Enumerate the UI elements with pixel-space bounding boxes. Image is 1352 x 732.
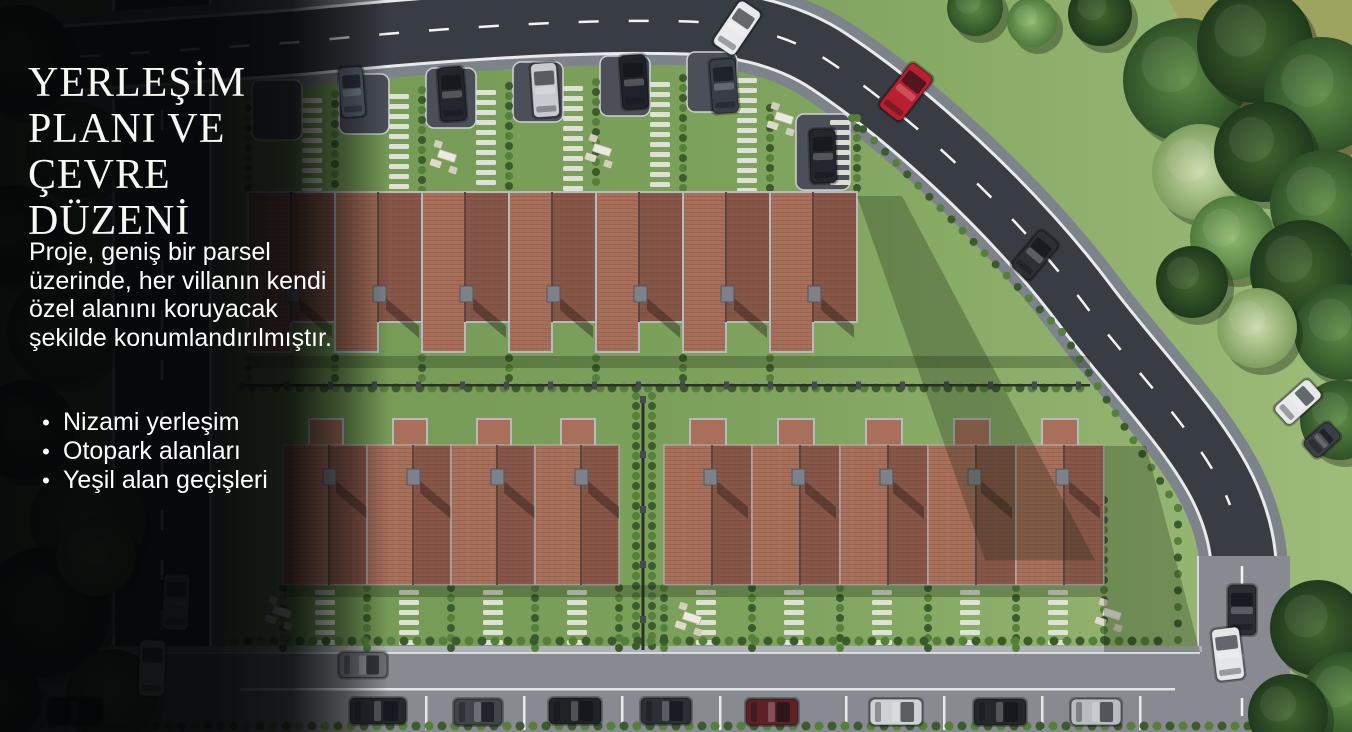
stepping-stone — [1048, 630, 1068, 635]
stepping-stone — [1048, 610, 1068, 615]
car-parked-9 — [1069, 697, 1123, 727]
stepping-stone — [650, 182, 670, 187]
hedge-bush — [426, 637, 435, 646]
hedge-bush — [679, 374, 687, 382]
hedge-bush — [615, 624, 623, 632]
list-item-label: Yeşil alan geçişleri — [63, 466, 349, 494]
car-parked-7 — [868, 697, 924, 727]
title-line-1: YERLEŞİM — [28, 60, 368, 106]
stepping-stone — [650, 172, 670, 177]
hedge-bush — [925, 193, 933, 201]
hedge-bush — [648, 612, 656, 620]
fence-post — [680, 382, 685, 390]
hedge-bush — [829, 637, 838, 646]
stepping-stone — [567, 600, 587, 605]
hedge-bush — [505, 102, 513, 110]
hedge-bush — [853, 134, 861, 142]
hedge-bush — [766, 184, 774, 192]
stepping-stone — [389, 184, 409, 189]
hedge-bush — [592, 98, 600, 106]
stepping-stone — [563, 156, 583, 161]
hedge-bush — [505, 112, 513, 120]
hedge-bush — [836, 614, 844, 622]
stepping-stone — [389, 144, 409, 149]
hedge-bush — [892, 159, 900, 167]
hedge-bush — [632, 612, 640, 620]
hedge-bush — [447, 614, 455, 622]
hedge-bush — [766, 134, 774, 142]
hedge-bush — [648, 482, 656, 490]
stepping-stone — [563, 116, 583, 121]
hedge-bush — [592, 168, 600, 176]
hedge-bush — [894, 637, 903, 646]
stepping-stone — [737, 168, 757, 173]
stepping-stone — [563, 86, 583, 91]
hedge-bush — [972, 637, 981, 646]
hedge-bush — [556, 637, 565, 646]
hedge-bush — [543, 637, 552, 646]
hedge-bush — [632, 572, 640, 580]
stepping-stone — [389, 104, 409, 109]
car-parked-3 — [452, 697, 504, 727]
stepping-stone — [389, 134, 409, 139]
hedge-bush — [853, 154, 861, 162]
bullet-icon: • — [29, 467, 63, 495]
hedge-bush — [981, 249, 989, 257]
chimney — [491, 469, 504, 485]
hedge-bush — [992, 260, 1000, 268]
fence-post — [724, 382, 729, 390]
hedge-bush — [1036, 722, 1045, 731]
stepping-stone — [563, 96, 583, 101]
hedge-bush — [958, 722, 967, 731]
hedge-bush — [648, 442, 656, 450]
hedge-bush — [608, 637, 617, 646]
hedge-bush — [592, 78, 600, 86]
stepping-stone — [389, 174, 409, 179]
hedge-bush — [1112, 409, 1120, 417]
car-driveway-3 — [528, 60, 562, 120]
hedge-bush — [998, 637, 1007, 646]
hedge-bush — [387, 637, 396, 646]
hedge-bush — [582, 637, 591, 646]
hedge-bush — [632, 532, 640, 540]
stepping-stone — [567, 610, 587, 615]
hedge-bush — [907, 637, 916, 646]
hedge-bush — [418, 146, 426, 154]
hedge-bush — [648, 502, 656, 510]
hedge-bush — [1129, 436, 1137, 444]
hedge-bush — [679, 134, 687, 142]
list-item: • Nizami yerleşim — [29, 408, 349, 437]
stepping-stone — [650, 102, 670, 107]
list-item-label: Nizami yerleşim — [63, 408, 349, 436]
hedge-bush — [660, 624, 668, 632]
hedge-bush — [418, 116, 426, 124]
stepping-stone — [650, 82, 670, 87]
hedge-bush — [802, 722, 811, 731]
stepping-stone — [960, 620, 980, 625]
hedge-bush — [970, 238, 978, 246]
fence-post — [640, 561, 646, 568]
fence-post — [548, 382, 553, 390]
fence-post — [640, 506, 646, 513]
hedge-bush — [447, 624, 455, 632]
chimney — [634, 286, 647, 302]
hedge-bush — [764, 637, 773, 646]
stepping-stone — [483, 600, 503, 605]
list-item-label: Otopark alanları — [63, 437, 349, 465]
stepping-stone — [737, 148, 757, 153]
hedge-bush — [1165, 490, 1173, 498]
hedge-bush — [853, 174, 861, 182]
hedge-bush — [418, 374, 426, 382]
hedge-bush — [418, 176, 426, 184]
hedge-bush — [1103, 396, 1111, 404]
car-driveway-2 — [435, 64, 469, 124]
hedge-bush — [751, 637, 760, 646]
hedge-bush — [632, 452, 640, 460]
hedge-bush — [924, 614, 932, 622]
stepping-stone — [563, 146, 583, 151]
hedge-bush — [648, 452, 656, 460]
stepping-stone — [650, 132, 670, 137]
stepping-stone — [476, 120, 496, 125]
hedge-bush — [517, 637, 526, 646]
hedge-bush — [412, 722, 421, 731]
hedge-bush — [632, 512, 640, 520]
hedge-bush — [881, 637, 890, 646]
hedge-bush — [936, 204, 944, 212]
fence-post — [460, 382, 465, 390]
stepping-stone — [872, 600, 892, 605]
chimney — [547, 286, 560, 302]
hedge-bush — [660, 637, 669, 646]
hedge-bush — [648, 402, 656, 410]
hedge-bush — [1205, 722, 1214, 731]
villa-roof — [596, 192, 683, 352]
stepping-stone — [563, 126, 583, 131]
chimney — [575, 469, 588, 485]
car-parked-8 — [972, 697, 1028, 727]
stepping-stone — [389, 124, 409, 129]
hedge-bush — [959, 637, 968, 646]
hedge-bush — [530, 637, 539, 646]
fence-post — [640, 451, 646, 458]
stepping-stone — [563, 176, 583, 181]
hedge-bush — [634, 637, 643, 646]
stepping-stone — [737, 78, 757, 83]
hedge-bush — [648, 462, 656, 470]
hedge-bush — [660, 614, 668, 622]
hedge-bush — [592, 88, 600, 96]
stepping-stone — [784, 610, 804, 615]
hedge-bush — [1085, 369, 1093, 377]
stepping-stone — [830, 120, 850, 125]
hedge-bush — [881, 148, 889, 156]
hedge-bush — [648, 492, 656, 500]
hedge-bush — [620, 722, 629, 731]
hedge-bush — [505, 82, 513, 90]
stepping-stone — [650, 152, 670, 157]
stepping-stone — [960, 600, 980, 605]
hedge-bush — [1011, 637, 1020, 646]
description-paragraph: Proje, geniş bir parsel üzerinde, her vi… — [29, 238, 347, 352]
hedge-bush — [452, 637, 461, 646]
hedge-bush — [595, 637, 604, 646]
fence-post — [636, 382, 641, 390]
stepping-stone — [737, 128, 757, 133]
stepping-stone — [872, 610, 892, 615]
hedge-bush — [790, 637, 799, 646]
hedge-bush — [504, 637, 513, 646]
stepping-stone — [784, 620, 804, 625]
hedge-bush — [505, 132, 513, 140]
stepping-stone — [483, 630, 503, 635]
bullet-icon: • — [29, 438, 63, 466]
hedge-bush — [439, 637, 448, 646]
hedge-bush — [648, 472, 656, 480]
hedge-bush — [438, 722, 447, 731]
hedge-bush — [679, 84, 687, 92]
hedge-bush — [648, 542, 656, 550]
stepping-stone — [784, 600, 804, 605]
hedge-bush — [648, 572, 656, 580]
chimney — [704, 469, 717, 485]
stepping-stone — [483, 610, 503, 615]
bullet-icon: • — [29, 409, 63, 437]
hedge-bush — [959, 227, 967, 235]
fence-post — [900, 382, 905, 390]
hedge-bush — [632, 562, 640, 570]
villa-roof — [770, 192, 857, 352]
hedge-bush — [531, 604, 539, 612]
hedge-bush — [648, 412, 656, 420]
fence-post — [640, 396, 646, 403]
hedge-bush — [945, 722, 954, 731]
hedge-bush — [648, 522, 656, 530]
hedge-bush — [698, 722, 707, 731]
list-item: • Yeşil alan geçişleri — [29, 466, 349, 495]
stepping-stone — [476, 170, 496, 175]
hedge-bush — [1174, 504, 1182, 512]
hedge-bush — [1012, 624, 1020, 632]
hedge-bush — [673, 637, 682, 646]
hedge-bush — [854, 722, 863, 731]
hedge-bush — [679, 124, 687, 132]
hedge-bush — [686, 637, 695, 646]
fence-post — [416, 382, 421, 390]
hedge-bush — [632, 392, 640, 400]
stepping-stone — [784, 630, 804, 635]
stepping-stone — [1048, 620, 1068, 625]
fence-post — [856, 382, 861, 390]
chimney — [407, 469, 420, 485]
hedge-bush — [679, 114, 687, 122]
hedge-bush — [1037, 637, 1046, 646]
stepping-stone — [650, 92, 670, 97]
hedge-bush — [418, 86, 426, 94]
hedge-bush — [679, 164, 687, 172]
villa-roof — [422, 192, 509, 352]
fence-post — [640, 616, 646, 623]
hedge-bush — [418, 96, 426, 104]
hedge-bush — [1063, 637, 1072, 646]
hedge-bush — [725, 637, 734, 646]
hedge-bush — [679, 144, 687, 152]
hedge-bush — [766, 154, 774, 162]
car-driveway-4 — [617, 52, 651, 112]
hedge-bush — [632, 492, 640, 500]
stepping-stone — [650, 162, 670, 167]
hedge-bush — [531, 624, 539, 632]
hedge-bush — [712, 637, 721, 646]
hedge-bush — [842, 637, 851, 646]
hedge-bush — [1012, 604, 1020, 612]
hedge-bush — [632, 472, 640, 480]
hedge-bush — [815, 722, 824, 731]
fence-post — [1076, 382, 1081, 390]
stepping-stone — [737, 178, 757, 183]
hedge-bush — [505, 172, 513, 180]
stepping-stone — [399, 630, 419, 635]
car-parked-6 — [744, 697, 800, 727]
hedge-bush — [1192, 722, 1201, 731]
villa-roof — [509, 192, 596, 352]
hedge-bush — [632, 502, 640, 510]
hedge-bush — [648, 562, 656, 570]
hedge-bush — [1174, 521, 1182, 529]
hedge-bush — [1218, 722, 1227, 731]
slide: YERLEŞİM PLANI VE ÇEVRE DÜZENİ Proje, ge… — [0, 0, 1352, 732]
stepping-stone — [696, 600, 716, 605]
hedge-bush — [1156, 477, 1164, 485]
hedge-bush — [679, 94, 687, 102]
hedge-bush — [679, 184, 687, 192]
hedge-bush — [777, 637, 786, 646]
hedge-bush — [465, 637, 474, 646]
stepping-stone — [1048, 600, 1068, 605]
hedge-bush — [447, 644, 455, 652]
hedge-bush — [711, 722, 720, 731]
stepping-stone — [563, 106, 583, 111]
stepping-stone — [399, 620, 419, 625]
hedge-bush — [592, 374, 600, 382]
hedge-bush — [1024, 637, 1033, 646]
stepping-stone — [476, 140, 496, 145]
hedge-bush — [1094, 382, 1102, 390]
hedge-bush — [1153, 722, 1162, 731]
hedge-bush — [447, 604, 455, 612]
hedge-bush — [632, 482, 640, 490]
feature-list: • Nizami yerleşim • Otopark alanları • Y… — [29, 408, 349, 495]
hedge-bush — [418, 126, 426, 134]
hedge-bush — [724, 722, 733, 731]
hedge-bush — [632, 402, 640, 410]
stepping-stone — [567, 620, 587, 625]
stepping-stone — [389, 164, 409, 169]
hedge-bush — [853, 164, 861, 172]
hedge-bush — [1047, 317, 1055, 325]
hedge-bush — [632, 412, 640, 420]
hedge-bush — [816, 637, 825, 646]
car-driveway-5 — [707, 56, 741, 116]
hedge-bush — [648, 532, 656, 540]
hedge-bush — [418, 136, 426, 144]
hedge-bush — [947, 215, 955, 223]
hedge-bush — [1076, 637, 1085, 646]
hedge-bush — [505, 142, 513, 150]
hedge-bush — [400, 637, 409, 646]
hedge-bush — [632, 622, 640, 630]
hedge-bush — [946, 637, 955, 646]
hedge-bush — [632, 602, 640, 610]
hedge-bush — [413, 637, 422, 646]
hedge-bush — [1231, 722, 1240, 731]
hedge-bush — [924, 604, 932, 612]
stepping-stone — [960, 630, 980, 635]
fence-post — [768, 382, 773, 390]
hedge-bush — [920, 637, 929, 646]
hedge-bush — [1067, 342, 1075, 350]
hedge-bush — [615, 644, 623, 652]
stepping-stone — [650, 142, 670, 147]
stepping-stone — [476, 100, 496, 105]
hedge-bush — [516, 722, 525, 731]
hedge-bush — [1179, 722, 1188, 731]
hedge-bush — [679, 74, 687, 82]
hedge-bush — [531, 614, 539, 622]
hedge-bush — [648, 422, 656, 430]
hedge-bush — [748, 624, 756, 632]
stepping-stone — [399, 610, 419, 615]
hedge-bush — [1012, 614, 1020, 622]
stepping-stone — [737, 118, 757, 123]
hedge-bush — [632, 462, 640, 470]
hedge-bush — [648, 512, 656, 520]
chimney — [880, 469, 893, 485]
stepping-stone — [872, 630, 892, 635]
chimney — [460, 286, 473, 302]
hedge-bush — [1174, 537, 1182, 545]
text-panel: YERLEŞİM PLANI VE ÇEVRE DÜZENİ Proje, ge… — [0, 0, 380, 732]
title-line-2: PLANI VE ÇEVRE — [28, 106, 368, 198]
stepping-stone — [476, 110, 496, 115]
stepping-stone — [650, 122, 670, 127]
hedge-bush — [632, 422, 640, 430]
hedge-bush — [648, 622, 656, 630]
hedge-bush — [615, 604, 623, 612]
hedge-bush — [505, 122, 513, 130]
fence-post — [592, 382, 597, 390]
hedge-bush — [853, 184, 861, 192]
hedge-bush — [679, 174, 687, 182]
car-driveway-6 — [807, 126, 839, 185]
hedge-bush — [632, 522, 640, 530]
hedge-bush — [848, 114, 856, 122]
hedge-bush — [418, 156, 426, 164]
hedge-bush — [607, 722, 616, 731]
hedge-bush — [766, 174, 774, 182]
hedge-bush — [621, 637, 630, 646]
stepping-stone — [650, 112, 670, 117]
hedge-bush — [529, 722, 538, 731]
hedge-bush — [766, 114, 774, 122]
hedge-bush — [828, 722, 837, 731]
hedge-bush — [985, 637, 994, 646]
stepping-stone — [476, 130, 496, 135]
hedge-bush — [1049, 722, 1058, 731]
